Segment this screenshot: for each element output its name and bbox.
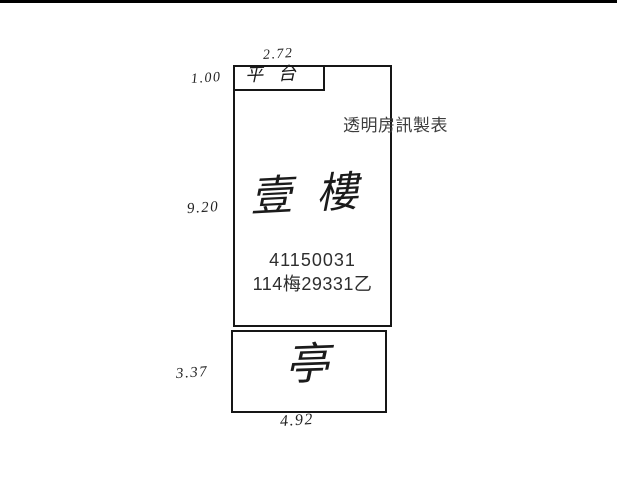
first-floor-label: 壹樓 <box>249 169 383 222</box>
pavilion-label: 亭 <box>284 340 330 390</box>
scan-artifact-bar <box>0 0 617 3</box>
dim-first-floor-height: 9.20 <box>186 199 219 218</box>
building-number: 41150031 <box>233 251 392 271</box>
survey-sketch-canvas: 透明房訊製表 平台 壹樓 亭 41150031 114梅29331乙 2.72 … <box>0 0 617 480</box>
case-number: 114梅29331乙 <box>233 275 392 295</box>
dim-pavilion-width: 4.92 <box>279 411 314 431</box>
platform-label: 平台 <box>245 64 312 86</box>
dim-platform-width: 2.72 <box>263 46 294 63</box>
dim-platform-height: 1.00 <box>191 70 222 87</box>
dim-pavilion-height: 3.37 <box>175 364 208 383</box>
maker-credit-text: 透明房訊製表 <box>343 117 448 136</box>
